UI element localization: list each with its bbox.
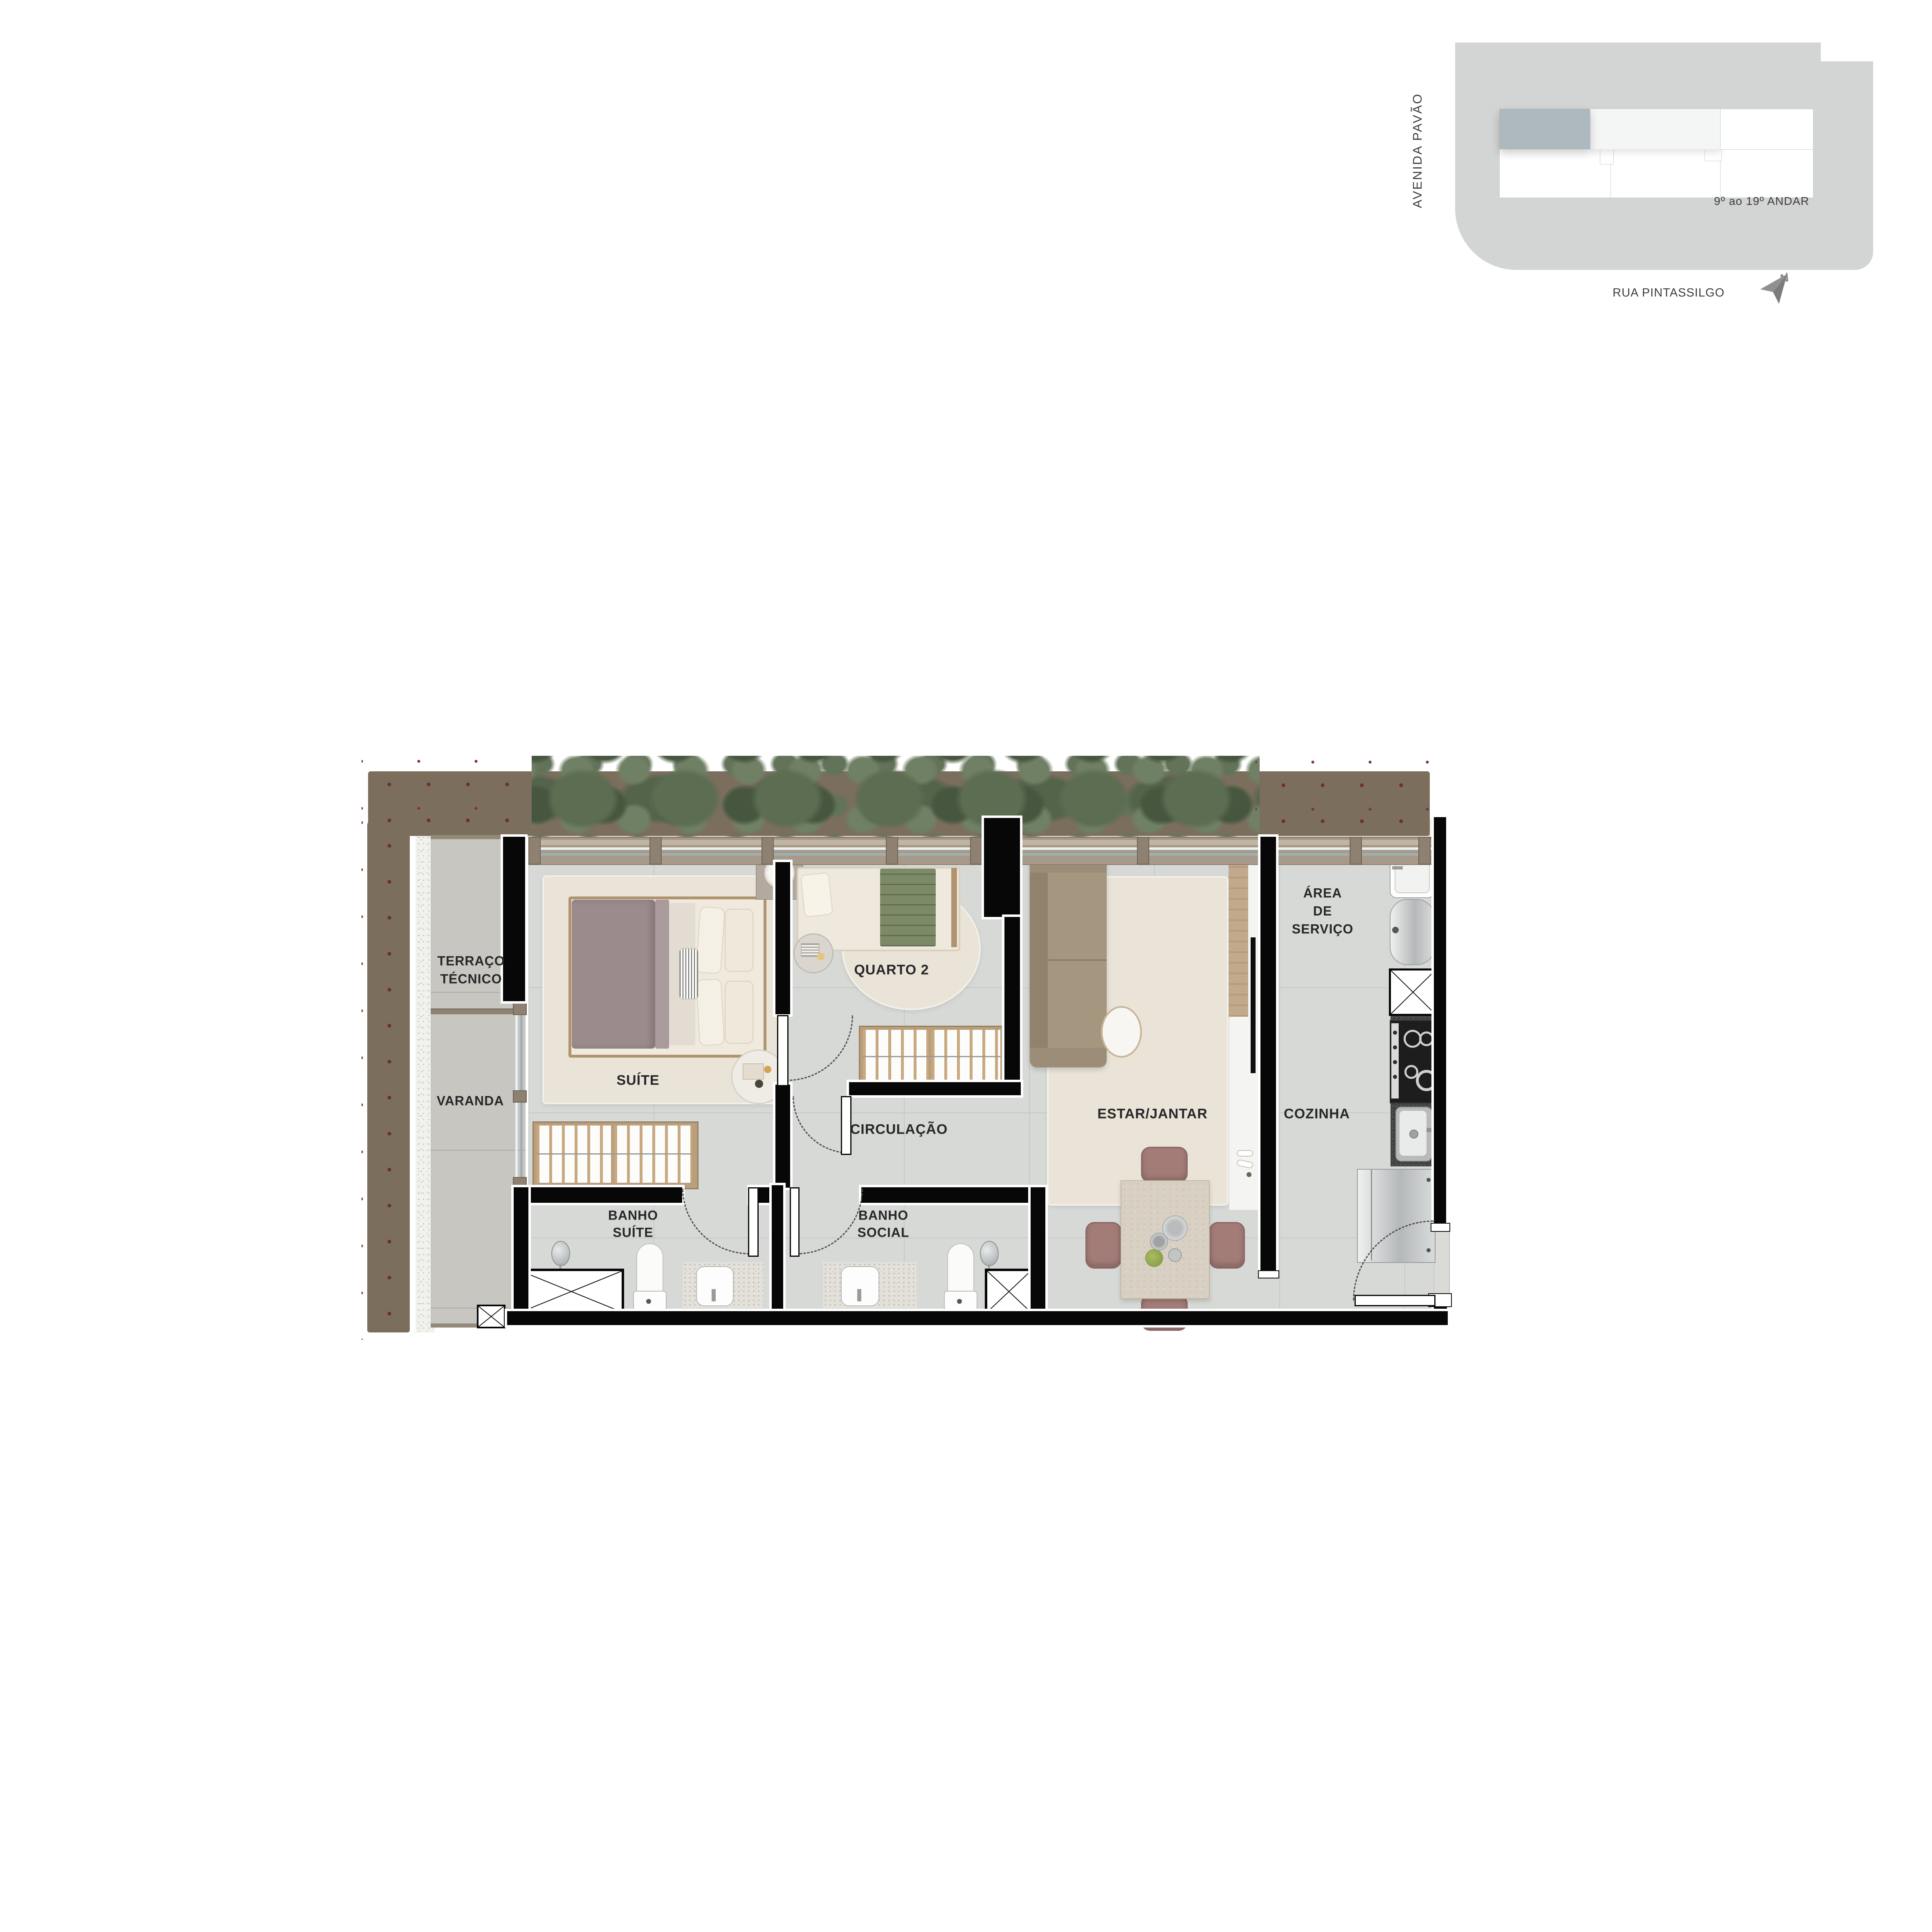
refrigerator-door-split [1371,1170,1372,1260]
room-label-area-line3: SERVIÇO [1292,922,1353,937]
estar-sofa-back [1030,853,1048,1067]
suite-side-table-candle [764,1066,771,1073]
wall-banho-top-right [861,1187,1033,1203]
banho-social-toilet-flush [957,1299,962,1304]
keyplan-unit-bottom-right [1720,149,1813,198]
window-post [528,837,541,865]
terraco-varanda-divider [431,1009,526,1014]
street-label-avenida-pavao: AVENIDA PAVÃO [1410,93,1425,208]
banho-suite-door-leaf [748,1187,759,1257]
suite-bed-blanket-fold [655,900,669,1049]
dining-chair-left [1085,1222,1121,1269]
window-post [762,837,774,865]
banho-suite-toilet-bowl [636,1243,663,1294]
room-label-circulacao: CIRCULAÇÃO [850,1122,948,1138]
wall-banho-social-right [1031,1187,1045,1311]
wall-quarto2-right [1004,917,1020,1095]
quarto2-pillow [800,872,833,918]
refrigerator-handle [1427,1178,1431,1182]
floor-range-label: 9º ao 19º ANDAR [1687,195,1809,208]
room-label-area-line1: ÁREA [1303,886,1342,901]
room-label-banho-social-line1: BANHO [858,1208,908,1223]
wall-banho-suite-left [514,1187,528,1311]
hedge-left [362,815,416,1340]
room-label-area-line2: DE [1313,904,1332,919]
room-label-suite: SUÍTE [616,1073,659,1089]
keyplan-unit-highlighted [1499,109,1590,149]
wall-column-quarto2-estar [984,818,1020,917]
kitchen-sink-faucet [1427,1128,1434,1132]
window-post [886,837,898,865]
tv-console [1229,864,1248,1017]
stove-knob [1393,1031,1397,1035]
wall-banho-top-left [528,1187,682,1203]
suite-side-table-book [743,1063,764,1080]
room-label-banho-social-line2: SOCIAL [858,1225,910,1240]
hedge-top-right [1256,755,1436,841]
keyplan-unit-top-right [1720,109,1813,150]
quarto2-green-throw [880,869,936,946]
suite-door-leaf [777,1015,789,1086]
quarto2-bed-foot [951,868,957,947]
suite-pillow-back-bottom [725,981,753,1044]
window-post [1418,837,1431,865]
wall-bottom-exterior [507,1311,1448,1325]
dining-chair-top [1141,1147,1188,1183]
suite-side-table-dish [755,1080,763,1088]
room-label-cozinha: COZINHA [1284,1106,1350,1122]
keyplan-site-notch [1821,43,1873,61]
wall-estar-cozinha [1260,837,1276,1271]
banho-social-shower [985,1269,1033,1314]
estar-sofa-cushion-split [1048,959,1107,961]
stove-knob [1393,1075,1397,1079]
wall-suite-quarto2-lower [775,1085,790,1188]
room-label-terraco-line2: TÉCNICO [440,972,502,987]
varanda-duct-shaft [477,1305,505,1328]
street-label-rua-pintassilgo: RUA PINTASSILGO [1607,286,1730,300]
tv-media-dot [1247,1172,1251,1177]
keyplan-unit-top-middle [1590,109,1721,150]
wall-right-exterior [1434,817,1446,1224]
banho-suite-mirror [551,1241,570,1266]
suite-bed-blanket [572,900,655,1049]
entry-threshold [1433,1229,1450,1297]
floorplan-page: AVENIDA PAVÃO 9º ao 19º ANDAR RUA PINTAS… [0,0,1932,1932]
north-arrow-icon [1753,267,1798,312]
kitchen-duct-shaft [1389,968,1437,1016]
window-post [970,837,982,865]
window-post [1137,837,1149,865]
keyplan-unit-bottom-left [1499,149,1611,198]
banho-suite-shower [519,1269,624,1314]
dining-chair-right [1209,1222,1245,1269]
wall-quarto2-bottom [849,1082,1021,1095]
hedge-top [532,756,1260,840]
suite-pillow-bottom [696,978,725,1046]
banho-social-toilet-bowl [947,1243,974,1294]
laundry-tank-faucet [1392,866,1403,869]
room-label-terraco-line1: TERRAÇO [437,954,505,969]
banho-social-mirror [980,1241,999,1266]
suite-pillow-back-top [725,909,753,972]
keyplan-core-notch-1 [1600,149,1614,164]
varanda-glass-post [513,1090,527,1103]
estar-side-table [1101,1006,1142,1058]
varanda-glass-post [513,1003,527,1015]
banho-suite-toilet-flush [646,1299,651,1304]
tv-media-object [1237,1150,1253,1157]
washing-machine-knob [1392,927,1399,933]
tv-screen [1251,937,1256,1073]
kitchen-sink-drain [1409,1130,1418,1139]
quarto2-side-table-magazine [801,943,820,957]
window-post [649,837,662,865]
dining-plant [1145,1249,1163,1267]
wall-banho-center [772,1185,783,1310]
quarto2-side-table-lamp [817,953,824,960]
banho-suite-faucet [712,1289,716,1301]
dining-plate-small [1150,1233,1168,1251]
banho-social-door-leaf [790,1187,800,1257]
wall-suite-quarto2-upper [775,862,790,1014]
room-label-quarto2: QUARTO 2 [854,962,929,978]
room-label-banho-suite-line1: BANHO [608,1208,658,1223]
dining-bowl [1168,1248,1182,1262]
keyplan-core-notch-2 [1705,149,1722,161]
suite-wardrobe-rail [537,1153,692,1155]
room-label-estar: ESTAR/JANTAR [1097,1106,1208,1122]
stove-knob [1393,1060,1397,1064]
stove-knob [1393,1045,1397,1049]
entry-door-leaf [1355,1295,1436,1306]
estar-sofa-arm-bottom [1030,1048,1107,1067]
banho-social-faucet [857,1289,861,1301]
room-label-banho-suite-line2: SUÍTE [613,1225,653,1240]
room-label-varanda: VARANDA [437,1094,504,1109]
suite-accent-pillow [679,948,699,1000]
quarto2-wardrobe-rail [863,1056,1000,1057]
wall-terraco-suite [503,837,525,1001]
window-post [1350,837,1362,865]
wall-cap-cozinha [1258,1270,1279,1278]
stove-burner [1419,1031,1434,1046]
suite-pillow-top [695,906,725,974]
